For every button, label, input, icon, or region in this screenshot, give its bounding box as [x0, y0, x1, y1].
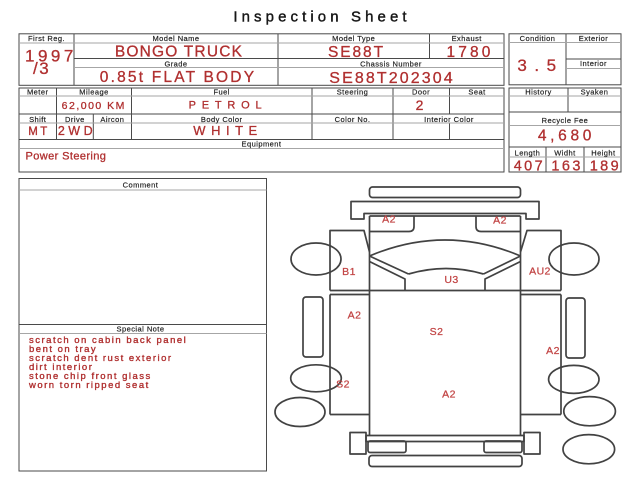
svg-text:A2: A2	[442, 389, 456, 401]
svg-text:Seat: Seat	[468, 88, 486, 97]
svg-text:62,000 KM: 62,000 KM	[62, 100, 126, 112]
svg-text:B1: B1	[342, 266, 356, 278]
svg-text:Equipment: Equipment	[242, 140, 282, 149]
svg-text:Color No.: Color No.	[335, 115, 371, 124]
svg-text:Comment: Comment	[123, 181, 159, 190]
svg-text:A2: A2	[546, 345, 560, 357]
svg-text:407: 407	[514, 159, 545, 175]
svg-text:189: 189	[590, 159, 621, 175]
svg-text:History: History	[525, 88, 552, 97]
svg-text:MT: MT	[28, 126, 50, 138]
svg-text:/3: /3	[33, 59, 50, 78]
svg-text:Model Name: Model Name	[152, 34, 199, 43]
svg-text:Aircon: Aircon	[100, 115, 124, 124]
svg-text:AU2: AU2	[529, 266, 551, 278]
svg-text:Meter: Meter	[27, 88, 48, 97]
svg-text:Grade: Grade	[164, 60, 187, 69]
svg-text:Exhaust: Exhaust	[452, 34, 483, 43]
svg-text:2WD: 2WD	[58, 124, 96, 138]
svg-text:1780: 1780	[447, 44, 494, 61]
svg-text:Steering: Steering	[337, 88, 369, 97]
svg-text:PETROL: PETROL	[189, 100, 268, 112]
svg-text:Door: Door	[412, 88, 430, 97]
svg-text:0.85t FLAT BODY: 0.85t FLAT BODY	[100, 69, 256, 86]
svg-text:Fuel: Fuel	[214, 88, 230, 97]
svg-text:3.5: 3.5	[517, 56, 563, 75]
svg-text:Height: Height	[591, 149, 616, 158]
svg-text:Widht: Widht	[554, 149, 576, 158]
svg-text:4,680: 4,680	[538, 128, 595, 145]
svg-text:Drive: Drive	[65, 115, 85, 124]
svg-text:2: 2	[416, 97, 424, 113]
svg-text:WHITE: WHITE	[193, 123, 262, 138]
svg-text:Power Steering: Power Steering	[26, 151, 107, 163]
svg-text:Recycle Fee: Recycle Fee	[542, 116, 589, 125]
svg-text:U3: U3	[444, 274, 458, 286]
svg-text:Interior: Interior	[580, 59, 607, 68]
svg-text:worn torn ripped seat: worn torn ripped seat	[28, 380, 150, 391]
svg-text:Model Type: Model Type	[332, 34, 375, 43]
svg-text:S2: S2	[430, 326, 444, 338]
svg-text:Condition: Condition	[520, 34, 556, 43]
svg-text:SE88T202304: SE88T202304	[329, 70, 454, 87]
svg-text:BONGO TRUCK: BONGO TRUCK	[115, 44, 243, 61]
svg-text:Length: Length	[515, 149, 541, 158]
svg-text:Shift: Shift	[29, 115, 47, 124]
svg-text:Exterior: Exterior	[579, 34, 608, 43]
svg-text:Syaken: Syaken	[581, 88, 609, 97]
svg-text:S2: S2	[336, 379, 350, 391]
svg-text:A2: A2	[493, 215, 507, 227]
svg-text:A2: A2	[382, 214, 396, 226]
svg-text:SE88T: SE88T	[328, 44, 385, 61]
svg-text:A2: A2	[348, 310, 362, 322]
svg-text:163: 163	[551, 159, 582, 175]
svg-text:First Reg.: First Reg.	[28, 34, 65, 43]
svg-text:Special Note: Special Note	[117, 325, 165, 334]
svg-text:Interior Color: Interior Color	[424, 115, 474, 124]
svg-text:Mileage: Mileage	[79, 88, 108, 97]
svg-text:Inspection Sheet: Inspection Sheet	[233, 9, 410, 26]
